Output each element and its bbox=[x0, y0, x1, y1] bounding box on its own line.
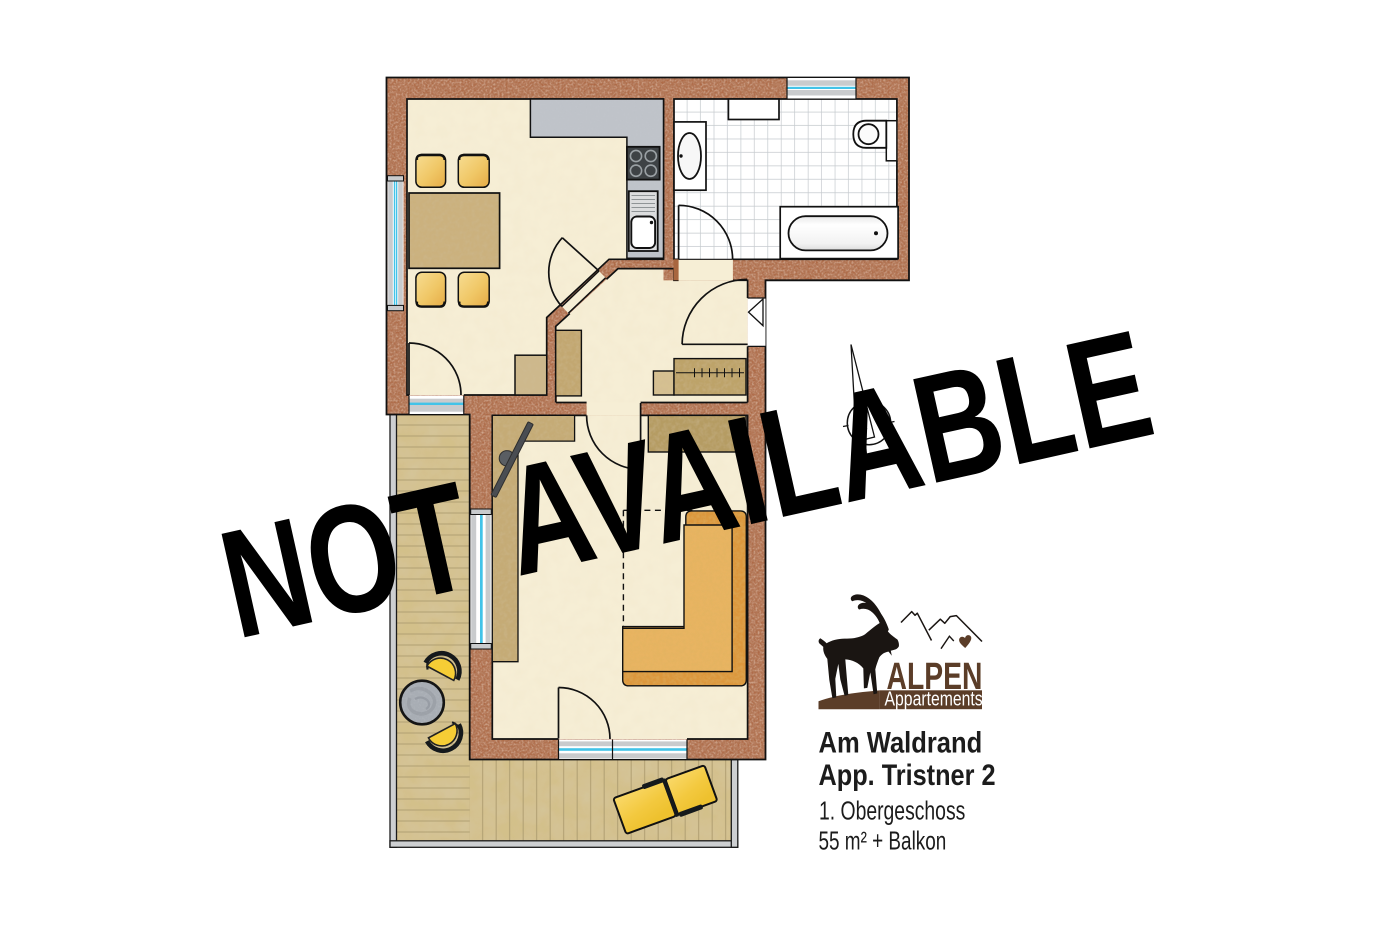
svg-text:1. Obergeschoss: 1. Obergeschoss bbox=[819, 796, 965, 825]
svg-text:Appartements: Appartements bbox=[885, 687, 983, 711]
svg-text:55 m² + Balkon: 55 m² + Balkon bbox=[819, 825, 947, 855]
svg-text:App. Tristner 2: App. Tristner 2 bbox=[819, 758, 996, 792]
svg-text:Am Waldrand: Am Waldrand bbox=[819, 726, 983, 759]
